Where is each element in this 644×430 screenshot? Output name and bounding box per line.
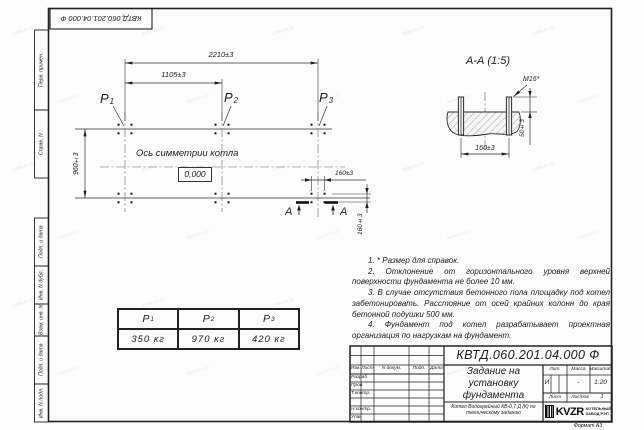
point-index: 1 xyxy=(110,97,114,106)
point-label-P1: P1 xyxy=(100,92,114,106)
note-4: 4. Фундамент под котел разрабатывает про… xyxy=(352,320,610,341)
company-logo: KVZR КОТЕЛЬНЫЙ ЗАВОД РЭП xyxy=(545,404,611,419)
header-letter: P xyxy=(263,313,270,325)
section-mark-left: А xyxy=(285,207,292,218)
dim-bolt-vertical: 160±3 xyxy=(356,206,366,242)
point-index: 3 xyxy=(329,96,333,105)
mass-value: - xyxy=(567,380,590,387)
dim-bolt-horizontal: 160±3 xyxy=(335,171,353,178)
axis-of-symmetry-label: Ось симметрии котла xyxy=(136,149,238,159)
note-1: 1. * Размер для справок. xyxy=(352,256,610,267)
tb-row-0: Разраб. xyxy=(351,376,374,381)
header-letter: P xyxy=(142,313,149,325)
lit-label: Лит. xyxy=(543,368,567,373)
notes-block: 1. * Размер для справок.2. Отклонение от… xyxy=(352,256,610,342)
format-label: Формат А3 xyxy=(558,424,618,429)
load-table-header-P1: P1 xyxy=(118,309,178,329)
point-letter: P xyxy=(100,91,109,106)
tb-column-1: Лист xyxy=(361,367,374,372)
plan-view-lines xyxy=(75,59,485,218)
section-title: А-А (1:5) xyxy=(466,56,510,67)
bolt-thread-label: M16* xyxy=(523,76,539,83)
kvzr-logo-text: KVZR xyxy=(556,406,584,418)
header-index: 3 xyxy=(271,316,275,323)
section-dim-height: 50±3 xyxy=(518,113,528,143)
sheet-label: Лист xyxy=(543,396,567,401)
tb-column-3: Подп. xyxy=(409,367,429,372)
header-index: 1 xyxy=(150,316,154,323)
note-3: 3. В случае отсутствия бетонного пола пл… xyxy=(352,288,610,320)
side-label-4: Взам. инв. N xyxy=(35,304,49,336)
header-letter: P xyxy=(203,313,210,325)
company-name-line2: ЗАВОД РЭП xyxy=(586,412,611,416)
point-letter: P xyxy=(319,90,328,105)
tb-row-4: Утв. xyxy=(351,416,374,421)
tb-row-3: Н.контр. xyxy=(351,408,374,413)
point-index: 2 xyxy=(234,96,238,105)
mass-label: Масса xyxy=(567,368,590,373)
side-label-3: Инв. N дубл. xyxy=(35,266,49,304)
document-title-line3: фундамента xyxy=(444,391,543,401)
sheets-label: Листов xyxy=(567,396,593,401)
point-label-P3: P3 xyxy=(319,91,333,105)
side-label-6: Инв. N подл. xyxy=(35,384,49,422)
tb-column-0: Изм. xyxy=(350,367,361,372)
scale-value: 1:20 xyxy=(589,380,612,387)
note-2: 2. Отклонение от горизонтального уровня … xyxy=(352,267,610,288)
lit-value: И xyxy=(543,380,551,387)
sheets-value: 1 xyxy=(594,395,610,401)
side-label-0: Перв. примен. xyxy=(35,30,49,110)
scale-label: Масштаб xyxy=(589,368,612,373)
tb-row-1: Пров. xyxy=(351,384,374,389)
elevation-mark: 0,000 xyxy=(178,167,212,182)
point-label-P2: P2 xyxy=(224,91,238,105)
tb-column-2: N докум. xyxy=(374,367,409,372)
document-title-line1: Задание на xyxy=(444,367,543,377)
section-mark-right: А xyxy=(340,207,347,218)
title-block-designation: КВТД.060.201.04.000 Ф xyxy=(444,346,612,365)
section-dim-width: 160±3 xyxy=(462,145,508,152)
drawing-sheet: kotel-kv.rukotel-kv.rukotel-kv.rukotel-k… xyxy=(0,0,644,430)
load-table-value-1: 350 кг xyxy=(118,329,178,349)
stamp-designation-rotated: КВТД.060.201.04.000 Ф xyxy=(50,8,152,29)
load-table-value-3: 420 кг xyxy=(239,329,299,349)
drawing-linework xyxy=(0,0,644,430)
load-table-header-P3: P3 xyxy=(239,309,299,329)
dim-width-half: 1105±3 xyxy=(145,71,202,79)
side-label-2: Подп. и дата xyxy=(35,218,49,266)
anchor-bolt-clusters xyxy=(118,124,326,204)
company-name: КОТЕЛЬНЫЙ ЗАВОД РЭП xyxy=(586,407,611,416)
kvzr-emblem-icon xyxy=(545,405,554,418)
document-title-line2: установку xyxy=(444,379,543,389)
product-name: Котел Водогрейный КВ-0,7 Д (К) по технич… xyxy=(446,404,541,416)
side-label-5: Подп. и дата xyxy=(35,336,49,384)
side-label-1: Справ. N xyxy=(35,110,49,178)
point-letter: P xyxy=(224,90,233,105)
tb-row-2: Т.контр. xyxy=(351,392,374,397)
tb-column-4: Дата xyxy=(429,367,444,372)
dim-width-total: 2210±3 xyxy=(190,51,252,59)
header-index: 2 xyxy=(211,316,215,323)
load-table: P1P2P3350 кг970 кг420 кг xyxy=(117,308,300,350)
load-table-header-P2: P2 xyxy=(178,309,238,329)
load-table-value-2: 970 кг xyxy=(178,329,238,349)
dim-height: 960±3 xyxy=(71,141,82,187)
